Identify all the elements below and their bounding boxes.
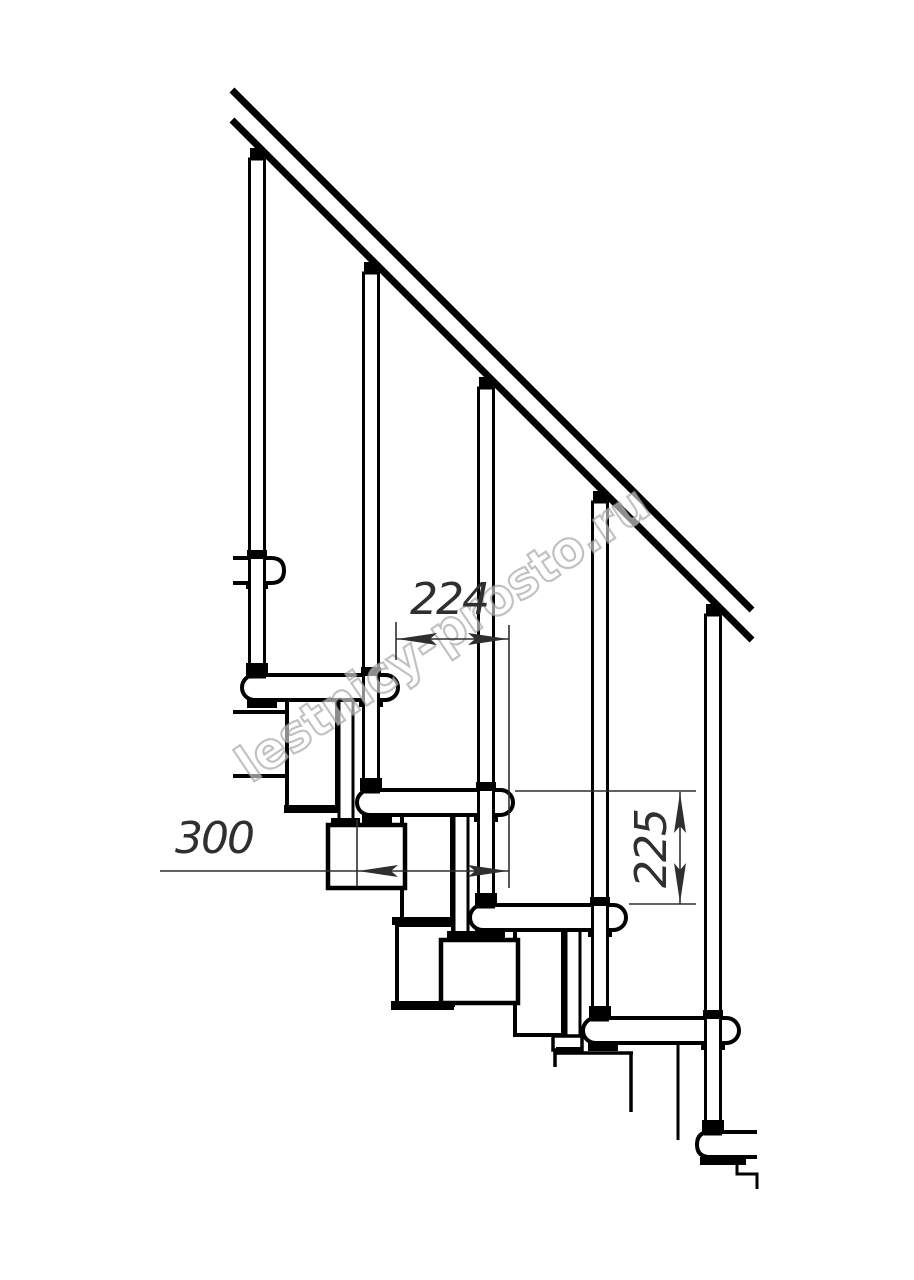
baluster-3-collar-top — [476, 782, 496, 791]
baluster-3-collar-base — [475, 893, 497, 906]
baluster-4-collar-top — [590, 897, 610, 906]
tread-6 — [697, 1132, 757, 1157]
clamp-tread-3-back — [362, 814, 392, 823]
baluster-5 — [702, 604, 724, 1134]
staircase-drawing-canvas: lestnicy-prosto.ru 224 300 225 — [0, 0, 914, 1280]
baluster-2-collar-base — [360, 778, 382, 791]
clamp-tread-4-back — [475, 929, 505, 938]
baluster-3-tube — [479, 388, 494, 907]
support-tube-3 — [454, 811, 468, 939]
baluster-1 — [246, 148, 268, 677]
baluster-5-collar-top — [703, 1010, 723, 1019]
dim-label-step-run: 224 — [410, 574, 488, 625]
baluster-4-tube — [593, 502, 608, 1020]
clamp-tread-2-back — [247, 699, 277, 708]
support-tube-4 — [566, 926, 580, 1040]
module-band-4 — [515, 925, 563, 1035]
baluster-1-collar-top — [247, 550, 267, 559]
baluster-4 — [589, 491, 611, 1020]
staircase-drawing: lestnicy-prosto.ru 224 300 225 — [0, 0, 914, 1280]
baluster-1-tube — [250, 159, 265, 677]
clamp-tread-5-back — [588, 1042, 618, 1051]
baluster-4-collar-base — [589, 1006, 611, 1019]
module-band-3 — [402, 810, 452, 920]
module-box-4 — [441, 940, 518, 1003]
baluster-1-collar-base — [246, 663, 268, 676]
dim-label-tread-depth: 300 — [175, 813, 253, 864]
dim-label-riser-height: 225 — [626, 810, 677, 888]
module-joint-2 — [284, 805, 340, 813]
module-box-3 — [328, 825, 405, 888]
baluster-5-tube — [706, 615, 721, 1134]
baluster-5-collar-base — [702, 1120, 724, 1133]
